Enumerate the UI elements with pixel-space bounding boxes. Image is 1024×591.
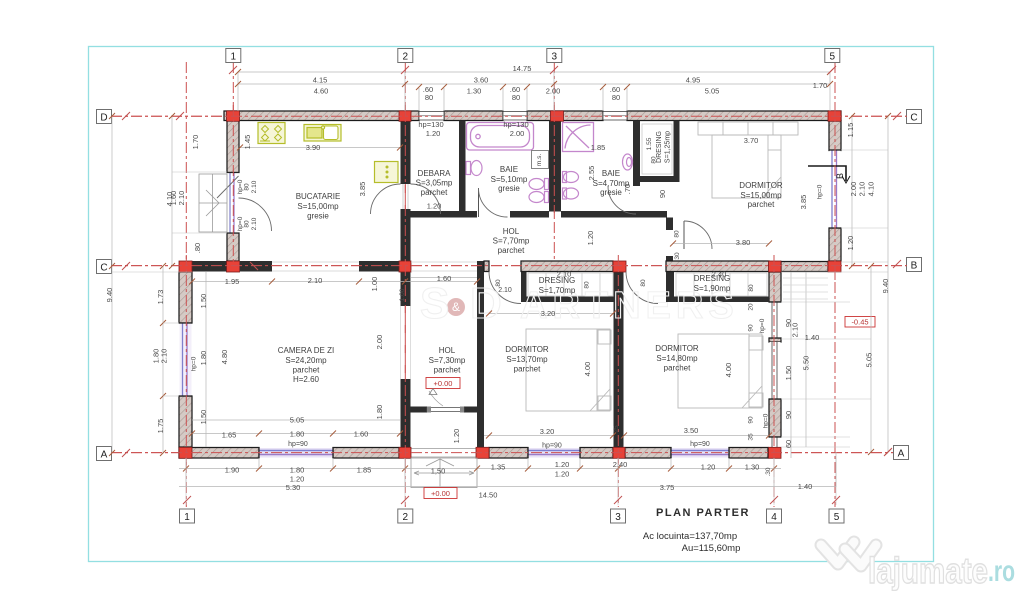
svg-text:1.80: 1.80	[290, 466, 305, 475]
svg-text:2.40: 2.40	[613, 460, 628, 469]
svg-text:2.00: 2.00	[375, 335, 384, 350]
svg-text:1,50: 1,50	[431, 467, 446, 476]
svg-text:1.85: 1.85	[357, 466, 372, 475]
svg-text:1.80: 1.80	[290, 430, 305, 439]
svg-text:80: 80	[495, 279, 502, 287]
svg-text:.80: .80	[193, 243, 202, 253]
svg-text:BAIE: BAIE	[602, 169, 620, 178]
svg-text:2.00: 2.00	[510, 129, 525, 138]
svg-text:C: C	[910, 113, 917, 124]
svg-text:4.00: 4.00	[583, 362, 592, 377]
svg-text:20: 20	[748, 303, 755, 311]
svg-text:80: 80	[674, 230, 681, 238]
svg-text:Ac locuinta=137,70mp: Ac locuinta=137,70mp	[643, 531, 737, 542]
svg-text:H=2.60: H=2.60	[293, 375, 320, 384]
svg-text:35: 35	[748, 433, 755, 441]
svg-text:80: 80	[651, 156, 658, 164]
svg-text:3: 3	[615, 512, 621, 523]
svg-text:1.73: 1.73	[156, 290, 165, 305]
svg-text:25: 25	[613, 425, 620, 433]
svg-text:80: 80	[244, 220, 251, 228]
svg-text:.70: .70	[623, 184, 632, 194]
svg-text:1.75: 1.75	[156, 419, 165, 434]
svg-text:3.90: 3.90	[306, 143, 321, 152]
svg-text:2.00: 2.00	[546, 87, 561, 96]
svg-text:4.95: 4.95	[686, 76, 701, 85]
svg-text:80: 80	[425, 93, 433, 102]
svg-text:hp=0: hp=0	[763, 413, 770, 428]
svg-text:3.85: 3.85	[799, 195, 808, 210]
svg-text:parchet: parchet	[498, 246, 525, 255]
svg-text:gresie: gresie	[600, 188, 622, 197]
svg-text:1.20: 1.20	[452, 429, 461, 444]
svg-text:hp=90: hp=90	[690, 441, 710, 448]
svg-text:2: 2	[403, 512, 409, 523]
svg-text:3.20: 3.20	[540, 427, 555, 436]
svg-text:5: 5	[834, 512, 840, 523]
svg-text:5.30: 5.30	[286, 483, 301, 492]
svg-text:BAIE: BAIE	[500, 165, 518, 174]
svg-text:m.s.: m.s.	[536, 154, 543, 166]
svg-text:1.70: 1.70	[813, 81, 828, 90]
svg-text:S=24,20mp: S=24,20mp	[285, 356, 327, 365]
svg-text:90: 90	[784, 411, 793, 419]
svg-text:3.75: 3.75	[660, 483, 675, 492]
svg-text:S=14,80mp: S=14,80mp	[656, 354, 698, 363]
svg-text:S=5,10mp: S=5,10mp	[491, 175, 528, 184]
svg-text:1.50: 1.50	[199, 410, 208, 425]
svg-text:1.50: 1.50	[784, 366, 793, 381]
svg-text:1.80: 1.80	[375, 405, 384, 420]
svg-text:1.00: 1.00	[399, 288, 406, 301]
svg-text:2.40: 2.40	[712, 270, 727, 279]
svg-text:2.10: 2.10	[251, 180, 258, 193]
svg-text:2.10: 2.10	[308, 276, 323, 285]
svg-text:DEBARA: DEBARA	[418, 169, 452, 178]
svg-text:3.50: 3.50	[684, 426, 699, 435]
svg-text:gresie: gresie	[498, 184, 520, 193]
svg-text:2.10: 2.10	[557, 270, 572, 279]
svg-text:hp=0: hp=0	[759, 318, 766, 333]
svg-text:S=3,05mp: S=3,05mp	[416, 179, 453, 188]
svg-text:2: 2	[403, 52, 409, 63]
svg-text:4.80: 4.80	[220, 350, 229, 365]
svg-text:lajumate: lajumate	[868, 550, 988, 591]
svg-text:5: 5	[830, 52, 836, 63]
svg-text:BUCATARIE: BUCATARIE	[296, 192, 341, 201]
svg-text:A: A	[101, 450, 108, 461]
svg-text:1.20: 1.20	[555, 460, 570, 469]
svg-text:.30: .30	[765, 467, 772, 476]
svg-text:5.05: 5.05	[865, 353, 874, 368]
svg-text:+0.00: +0.00	[431, 489, 450, 498]
svg-text:S=15,00mp: S=15,00mp	[740, 191, 782, 200]
svg-text:1.20: 1.20	[846, 236, 855, 251]
svg-text:parchet: parchet	[514, 365, 541, 374]
svg-text:HOL: HOL	[503, 227, 520, 236]
svg-text:80: 80	[640, 279, 647, 287]
svg-text:90: 90	[658, 190, 667, 198]
svg-text:1.70: 1.70	[191, 135, 200, 150]
svg-text:14.50: 14.50	[479, 491, 498, 500]
svg-text:hp=130: hp=130	[418, 120, 443, 129]
svg-text:parchet: parchet	[434, 366, 461, 375]
svg-text:5.50: 5.50	[802, 356, 811, 371]
svg-text:1.20: 1.20	[586, 231, 595, 246]
svg-text:2.10: 2.10	[791, 323, 800, 338]
svg-text:3: 3	[552, 52, 558, 63]
svg-text:1.35: 1.35	[491, 463, 506, 472]
svg-text:90: 90	[748, 324, 755, 332]
svg-text:1.20: 1.20	[701, 463, 716, 472]
svg-text:4: 4	[771, 512, 777, 523]
svg-text:90: 90	[748, 416, 755, 424]
svg-text:1.40: 1.40	[798, 482, 813, 491]
svg-text:1.95: 1.95	[225, 277, 240, 286]
svg-text:parchet: parchet	[421, 188, 448, 197]
svg-text:1.20: 1.20	[555, 470, 570, 479]
svg-text:S=13,70mp: S=13,70mp	[506, 355, 548, 364]
svg-text:80: 80	[512, 93, 520, 102]
svg-text:30: 30	[674, 252, 681, 260]
svg-text:1.20: 1.20	[426, 129, 441, 138]
svg-text:1: 1	[231, 52, 237, 63]
svg-text:1.55: 1.55	[646, 137, 653, 150]
svg-text:1.00: 1.00	[370, 277, 379, 292]
svg-text:B: B	[911, 261, 918, 272]
svg-text:parchet: parchet	[664, 364, 691, 373]
svg-text:4.15: 4.15	[313, 76, 328, 85]
svg-text:1.60: 1.60	[354, 430, 369, 439]
svg-text:1.60: 1.60	[437, 274, 452, 283]
svg-text:2.10: 2.10	[160, 349, 169, 364]
svg-text:hp=0: hp=0	[817, 184, 824, 199]
svg-text:C: C	[100, 263, 107, 274]
svg-text:2.55: 2.55	[587, 166, 596, 181]
svg-text:3.85: 3.85	[358, 182, 367, 197]
svg-text:DORMITOR: DORMITOR	[739, 181, 783, 190]
svg-text:1.50: 1.50	[199, 294, 208, 309]
svg-text:PLAN PARTER: PLAN PARTER	[656, 507, 750, 519]
svg-text:1.45: 1.45	[243, 135, 252, 150]
svg-text:4.00: 4.00	[724, 363, 733, 378]
svg-text:DORMITOR: DORMITOR	[655, 344, 699, 353]
svg-text:S=1,90mp: S=1,90mp	[694, 284, 731, 293]
svg-text:+0.00: +0.00	[434, 379, 453, 388]
svg-text:1.80: 1.80	[199, 351, 208, 366]
svg-text:parchet: parchet	[293, 366, 320, 375]
svg-text:gresie: gresie	[307, 212, 329, 221]
svg-text:3.60: 3.60	[474, 76, 489, 85]
svg-text:80: 80	[584, 281, 591, 289]
svg-text:1.65: 1.65	[222, 431, 237, 440]
svg-text:S=1,25mp: S=1,25mp	[665, 131, 672, 163]
svg-text:2.10: 2.10	[251, 217, 258, 230]
svg-text:60: 60	[784, 440, 793, 448]
svg-text:B: B	[835, 173, 845, 179]
svg-text:9.40: 9.40	[881, 279, 890, 294]
svg-text:1.30: 1.30	[745, 463, 760, 472]
svg-text:3.80: 3.80	[736, 238, 751, 247]
svg-text:1: 1	[184, 512, 190, 523]
svg-text:80: 80	[244, 183, 251, 191]
svg-text:1.85: 1.85	[591, 143, 606, 152]
svg-text:A: A	[898, 449, 905, 460]
svg-text:2.10: 2.10	[858, 182, 867, 197]
svg-text:S=7,30mp: S=7,30mp	[429, 356, 466, 365]
svg-text:S=15,00mp: S=15,00mp	[297, 202, 339, 211]
svg-text:Au=115,60mp: Au=115,60mp	[682, 543, 741, 554]
svg-text:2.10: 2.10	[498, 287, 512, 294]
svg-text:hp=90: hp=90	[542, 443, 562, 450]
svg-text:2.10: 2.10	[177, 191, 186, 206]
svg-text:S: S	[420, 279, 453, 328]
svg-text:1.30: 1.30	[467, 87, 482, 96]
svg-text:80: 80	[748, 284, 755, 292]
svg-text:4.10: 4.10	[867, 182, 876, 197]
svg-text:1.15: 1.15	[846, 123, 855, 138]
svg-text:CAMERA DE ZI: CAMERA DE ZI	[278, 346, 334, 355]
svg-text:HOL: HOL	[439, 346, 456, 355]
svg-text:S=1,70mp: S=1,70mp	[539, 286, 576, 295]
svg-text:1.90: 1.90	[225, 466, 240, 475]
svg-text:S=7,70mp: S=7,70mp	[493, 237, 530, 246]
svg-text:1.20: 1.20	[427, 202, 442, 211]
svg-text:4.60: 4.60	[314, 87, 329, 96]
svg-text:DORMITOR: DORMITOR	[505, 345, 549, 354]
svg-text:hp=0: hp=0	[191, 356, 198, 371]
svg-text:hp=130: hp=130	[503, 120, 528, 129]
svg-text:.ro: .ro	[988, 555, 1015, 588]
svg-text:3.20: 3.20	[541, 309, 556, 318]
svg-text:hp=90: hp=90	[288, 441, 308, 448]
svg-text:D: D	[100, 113, 107, 124]
svg-text:3.70: 3.70	[744, 136, 759, 145]
svg-text:5.05: 5.05	[290, 416, 305, 425]
svg-text:9.40: 9.40	[105, 288, 114, 303]
svg-text:14.75: 14.75	[513, 64, 532, 73]
svg-text:5.05: 5.05	[705, 87, 720, 96]
svg-text:80: 80	[612, 93, 620, 102]
svg-text:-0.45: -0.45	[851, 318, 868, 327]
svg-text:1.40: 1.40	[805, 333, 820, 342]
svg-text:parchet: parchet	[748, 200, 775, 209]
